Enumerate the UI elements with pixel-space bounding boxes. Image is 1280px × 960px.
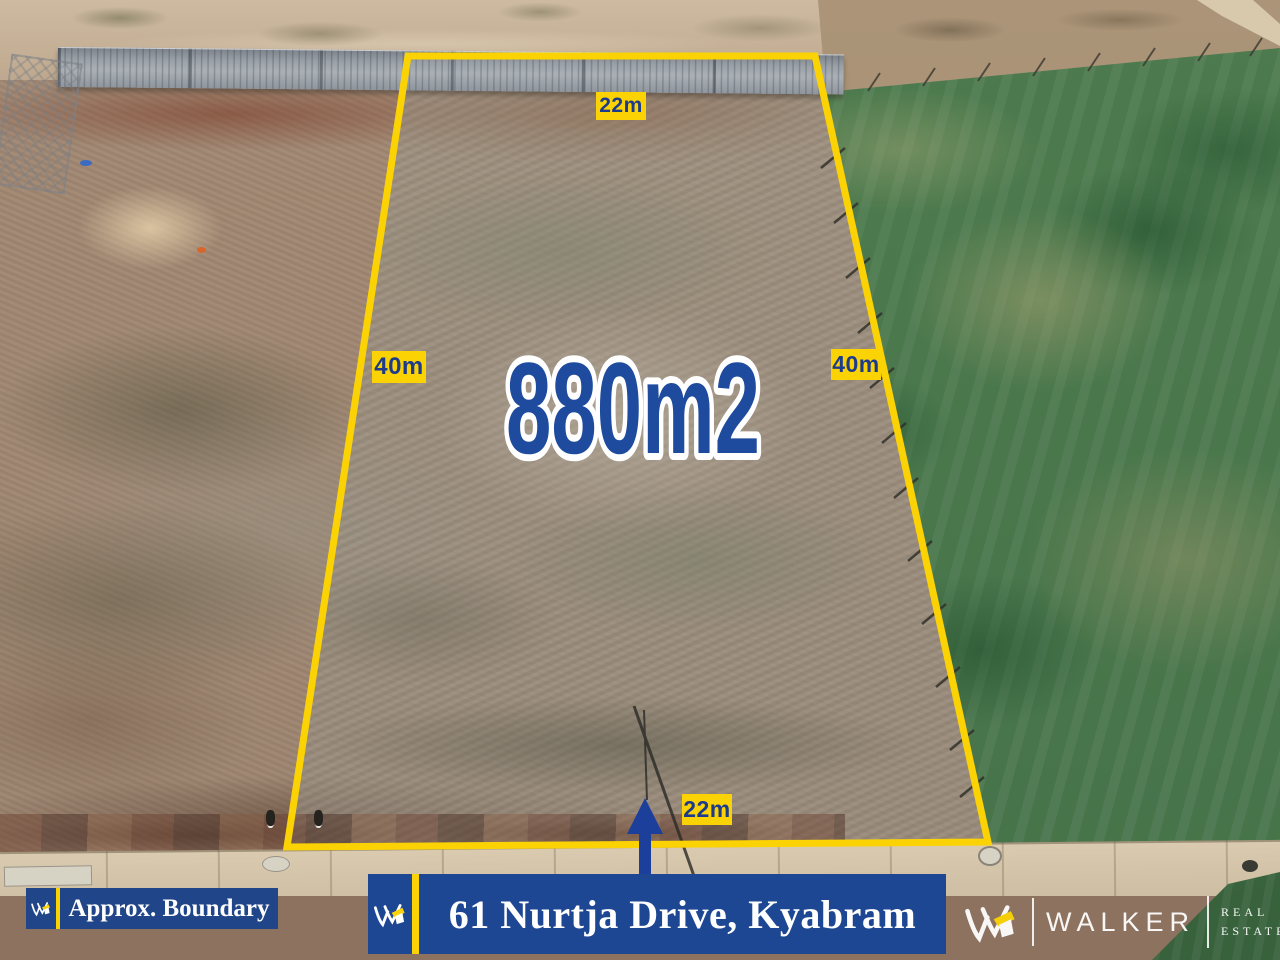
brand-tagline-line2: ESTATE: [1221, 922, 1280, 941]
dimension-label-right: 40m: [831, 349, 881, 380]
fence-post-ticks-top-right: [868, 38, 1262, 91]
annotation-overlay: 880m2: [0, 0, 1280, 960]
dimension-label-left: 40m: [372, 351, 426, 383]
brand-tagline-line1: REAL: [1221, 903, 1280, 922]
divider-line: [1207, 896, 1209, 948]
dimension-label-top: 22m: [596, 92, 646, 120]
yellow-stripe: [412, 874, 419, 954]
approx-boundary-badge: Approx. Boundary: [26, 888, 278, 929]
location-arrow: [627, 798, 663, 880]
address-text: 61 Nurtja Drive, Kyabram: [419, 874, 946, 954]
walker-logo-icon: [368, 874, 412, 954]
area-text: 880m2: [506, 335, 760, 481]
dimension-label-bottom: 22m: [682, 794, 732, 825]
divider-line: [1032, 898, 1034, 946]
walker-logo-icon: [962, 900, 1020, 944]
brand-watermark: WALKER REAL ESTATE: [962, 896, 1280, 948]
brand-name: WALKER: [1046, 907, 1195, 938]
address-banner: 61 Nurtja Drive, Kyabram: [368, 874, 946, 954]
real-estate-aerial-photo: 880m2 22m 40m 40m 22m Approx. Boundary 6…: [0, 0, 1280, 960]
approx-boundary-label: Approx. Boundary: [60, 888, 278, 929]
brand-tagline: REAL ESTATE: [1221, 903, 1280, 940]
walker-logo-icon: [26, 888, 56, 929]
